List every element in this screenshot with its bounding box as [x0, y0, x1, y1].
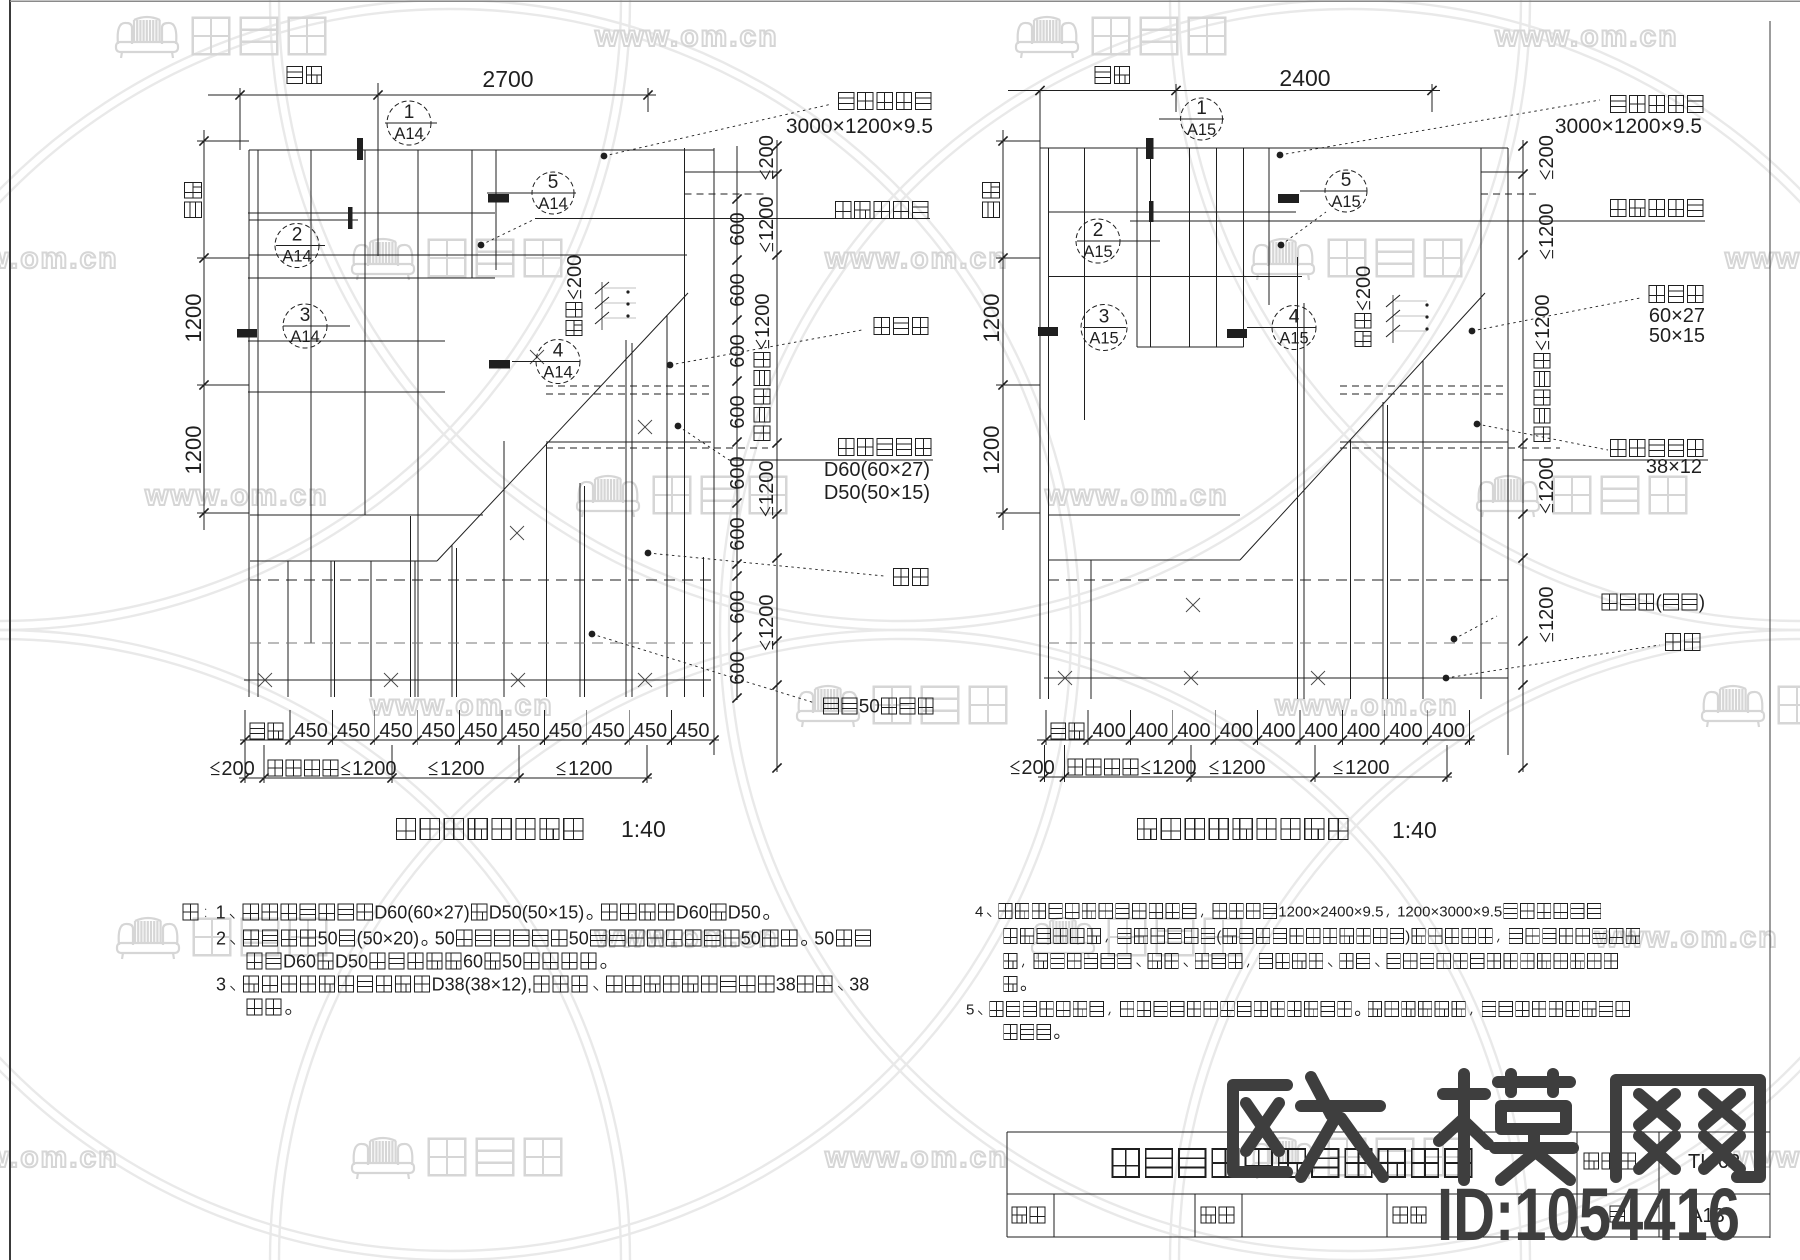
svg-text:www.om.cn: www.om.cn	[824, 1141, 1009, 1174]
svg-text:600: 600	[727, 590, 749, 623]
svg-text:3000×1200×9.5: 3000×1200×9.5	[1555, 115, 1702, 138]
svg-text:1200: 1200	[1345, 757, 1390, 779]
svg-text:D60: D60	[676, 902, 709, 922]
svg-text:400: 400	[1177, 720, 1210, 742]
svg-text:200: 200	[1021, 757, 1054, 779]
svg-text:(: (	[1656, 593, 1663, 614]
svg-text:D50(50×15): D50(50×15)	[489, 902, 585, 922]
svg-text:1: 1	[1196, 98, 1207, 119]
svg-text:600: 600	[727, 517, 749, 550]
svg-text:5: 5	[966, 1001, 974, 1018]
svg-text:200: 200	[1353, 266, 1375, 299]
svg-text:D50: D50	[728, 902, 761, 922]
svg-text:600: 600	[727, 334, 749, 367]
svg-text:400: 400	[1262, 720, 1295, 742]
svg-text:1200: 1200	[752, 294, 774, 339]
svg-text:50: 50	[814, 928, 834, 948]
svg-text:200: 200	[564, 255, 586, 288]
svg-text:60: 60	[463, 951, 483, 971]
svg-text:www.om.cn: www.om.cn	[0, 1141, 119, 1174]
svg-text:2: 2	[1093, 220, 1104, 241]
svg-text:www.om.cn: www.om.cn	[1494, 20, 1679, 53]
svg-text:3: 3	[216, 974, 226, 994]
svg-text:3: 3	[300, 305, 311, 326]
svg-text:4: 4	[553, 341, 564, 362]
svg-text:): )	[1405, 928, 1410, 945]
svg-text:38×12: 38×12	[1646, 456, 1702, 478]
svg-text:450: 450	[591, 720, 624, 742]
svg-text:D50(50×15): D50(50×15)	[824, 482, 930, 504]
svg-text:50: 50	[859, 697, 880, 718]
svg-text:A14: A14	[290, 328, 319, 346]
svg-text:1200: 1200	[1536, 204, 1558, 249]
svg-text:38: 38	[776, 974, 796, 994]
svg-text:400: 400	[1305, 720, 1338, 742]
svg-text:1200: 1200	[568, 758, 613, 780]
svg-text:50: 50	[318, 928, 338, 948]
svg-text:600: 600	[727, 651, 749, 684]
svg-text:600: 600	[727, 273, 749, 306]
svg-text:www.om.cn: www.om.cn	[144, 479, 329, 512]
svg-text:1200×3000×9.5: 1200×3000×9.5	[1397, 903, 1502, 920]
svg-text:4: 4	[975, 903, 983, 920]
svg-text:60×27: 60×27	[1649, 305, 1705, 327]
svg-text:1200: 1200	[1532, 295, 1554, 340]
svg-text:www.om.cn: www.om.cn	[1724, 242, 1800, 275]
svg-text:600: 600	[727, 395, 749, 428]
svg-text:450: 450	[507, 720, 540, 742]
svg-text:3: 3	[1099, 307, 1110, 328]
svg-text:450: 450	[379, 720, 412, 742]
svg-text:1200: 1200	[979, 426, 1004, 475]
svg-text:450: 450	[676, 720, 709, 742]
svg-text:4: 4	[1289, 307, 1300, 328]
svg-text:400: 400	[1347, 720, 1380, 742]
svg-text:www.om.cn: www.om.cn	[594, 20, 779, 53]
svg-text:A14: A14	[543, 364, 572, 382]
svg-text:1200: 1200	[1152, 757, 1197, 779]
svg-text:600: 600	[727, 212, 749, 245]
svg-text:www.om.cn: www.om.cn	[1044, 479, 1229, 512]
svg-text:1200: 1200	[756, 197, 778, 242]
svg-text:D60(60×27): D60(60×27)	[824, 459, 930, 481]
svg-text:1:40: 1:40	[621, 816, 666, 842]
svg-text:1:40: 1:40	[1392, 817, 1437, 843]
svg-text:50: 50	[569, 928, 589, 948]
svg-text:2: 2	[216, 928, 226, 948]
svg-text:D38(38×12),: D38(38×12),	[432, 974, 533, 994]
svg-text:1: 1	[216, 902, 226, 922]
svg-text:1200: 1200	[352, 758, 397, 780]
svg-text:1200: 1200	[181, 426, 206, 475]
svg-text:1200: 1200	[1221, 757, 1266, 779]
svg-text:(: (	[1216, 928, 1221, 945]
svg-text:450: 450	[337, 720, 370, 742]
svg-text:2400: 2400	[1279, 65, 1330, 91]
svg-text:450: 450	[464, 720, 497, 742]
svg-text:A15: A15	[1331, 193, 1360, 211]
svg-text:450: 450	[295, 720, 328, 742]
svg-text:ID:1054416: ID:1054416	[1437, 1173, 1740, 1256]
svg-text:200: 200	[221, 758, 254, 780]
svg-text:1200: 1200	[756, 461, 778, 506]
svg-text:A15: A15	[1279, 330, 1308, 348]
svg-text:A15: A15	[1089, 330, 1118, 348]
svg-text:A14: A14	[538, 195, 567, 213]
svg-text:5: 5	[1341, 170, 1352, 191]
svg-text:www.om.cn: www.om.cn	[1274, 689, 1459, 722]
svg-text:400: 400	[1093, 720, 1126, 742]
svg-text:1200: 1200	[1536, 587, 1558, 632]
svg-text:www.om.cn: www.om.cn	[0, 242, 119, 275]
svg-text:450: 450	[549, 720, 582, 742]
svg-text:38: 38	[849, 974, 869, 994]
svg-text:400: 400	[1432, 720, 1465, 742]
svg-text:400: 400	[1135, 720, 1168, 742]
svg-text:450: 450	[422, 720, 455, 742]
svg-text:600: 600	[727, 456, 749, 489]
svg-text:200: 200	[1536, 135, 1558, 168]
svg-text:200: 200	[756, 135, 778, 168]
svg-text:5: 5	[548, 172, 559, 193]
svg-text:(50×20): (50×20)	[357, 928, 420, 948]
svg-text:): )	[1699, 593, 1705, 614]
svg-text:450: 450	[634, 720, 667, 742]
svg-text:www.om.cn: www.om.cn	[369, 689, 554, 722]
svg-text:A15: A15	[1083, 243, 1112, 261]
svg-text:400: 400	[1389, 720, 1422, 742]
svg-text:50: 50	[502, 951, 522, 971]
svg-text:50×15: 50×15	[1649, 325, 1705, 347]
svg-text:www.om.cn: www.om.cn	[824, 242, 1009, 275]
svg-text:2: 2	[292, 225, 303, 246]
svg-text:A14: A14	[282, 248, 311, 266]
svg-text:2700: 2700	[482, 66, 533, 92]
svg-text:1200: 1200	[979, 294, 1004, 343]
svg-text:A14: A14	[394, 125, 423, 143]
svg-text:1200: 1200	[756, 595, 778, 640]
svg-text:50: 50	[435, 928, 455, 948]
svg-text:1200: 1200	[440, 758, 485, 780]
svg-text:D50: D50	[335, 951, 368, 971]
svg-text:D60(60×27): D60(60×27)	[374, 902, 470, 922]
svg-text:D60: D60	[283, 951, 316, 971]
svg-text:1200: 1200	[1536, 458, 1558, 503]
svg-text:1200×2400×9.5: 1200×2400×9.5	[1278, 903, 1383, 920]
svg-text:1: 1	[404, 102, 415, 123]
svg-text:400: 400	[1220, 720, 1253, 742]
svg-text:1200: 1200	[181, 294, 206, 343]
svg-text:50: 50	[741, 928, 761, 948]
svg-text:A15: A15	[1187, 121, 1216, 139]
svg-text:3000×1200×9.5: 3000×1200×9.5	[786, 115, 933, 138]
